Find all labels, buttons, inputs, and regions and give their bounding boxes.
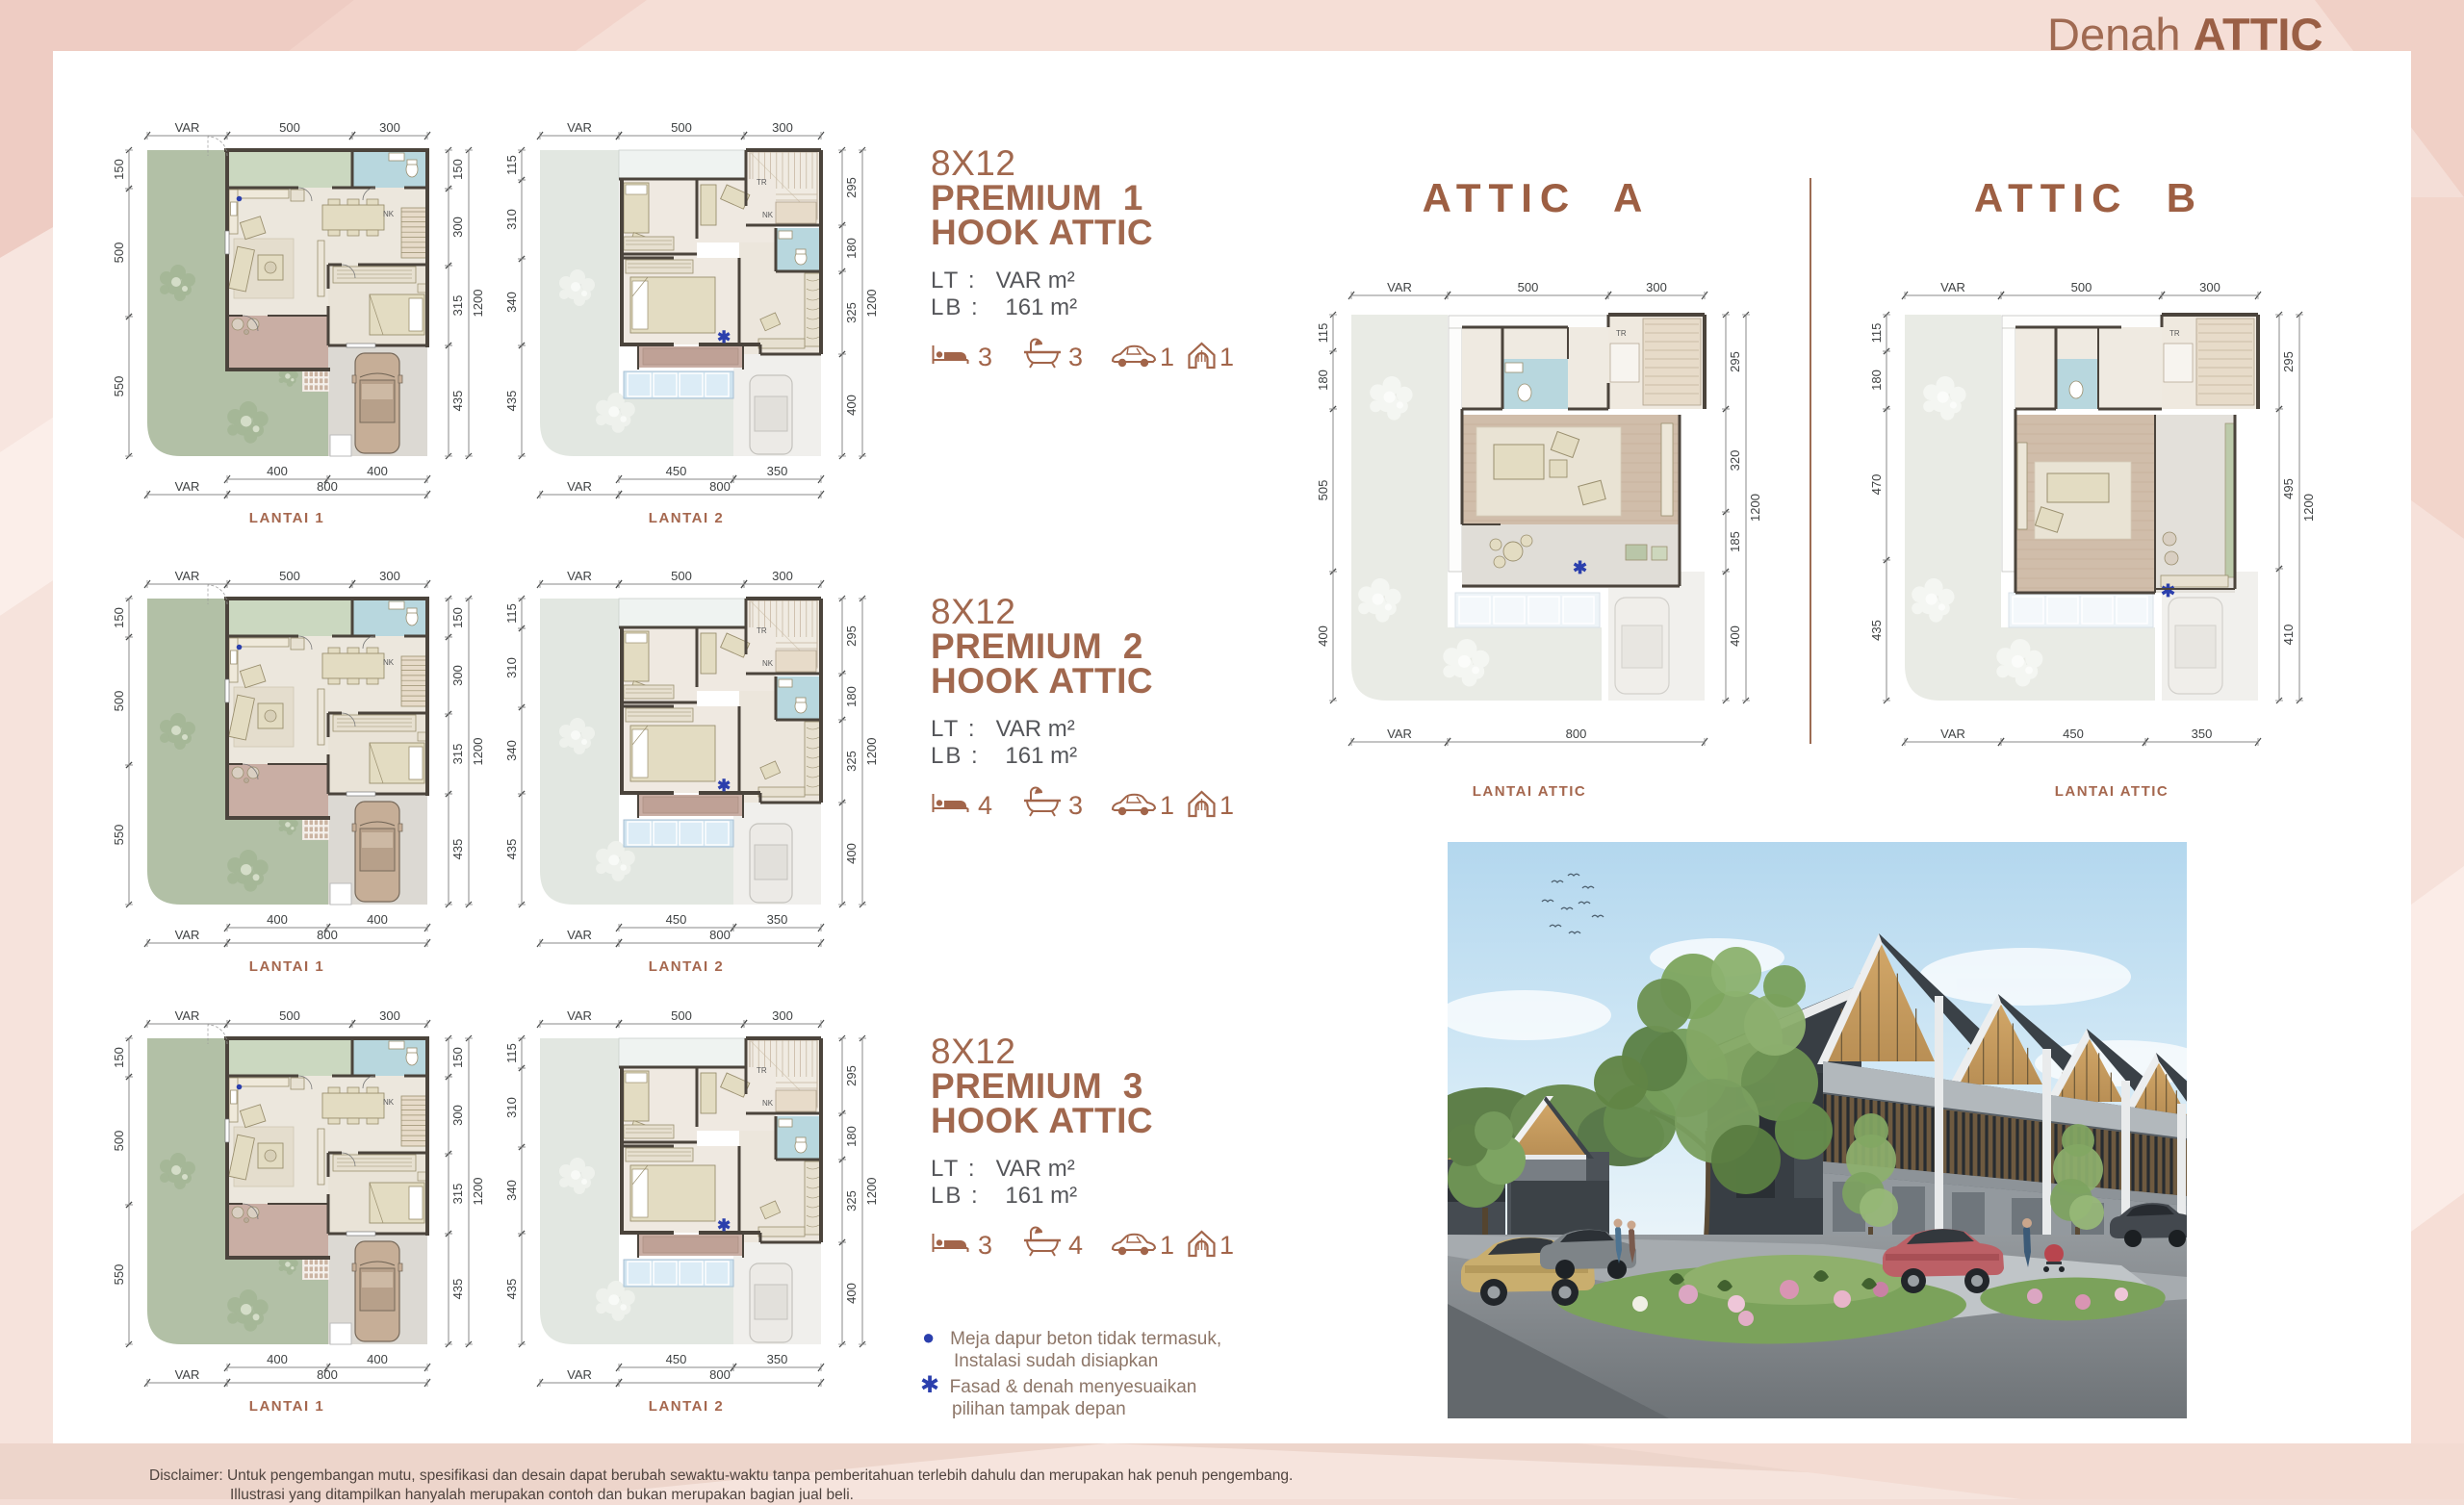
- svg-text:✱: ✱: [1573, 558, 1587, 577]
- svg-text:500: 500: [1518, 280, 1539, 294]
- svg-text:435: 435: [1869, 620, 1884, 641]
- svg-text:295: 295: [1728, 351, 1742, 372]
- svg-text:400: 400: [1316, 625, 1330, 647]
- svg-text:300: 300: [1646, 280, 1667, 294]
- svg-text:470: 470: [1869, 474, 1884, 496]
- svg-text:185: 185: [1728, 531, 1742, 552]
- svg-text:495: 495: [2281, 478, 2296, 499]
- svg-text:✱: ✱: [2161, 581, 2175, 600]
- svg-text:VAR: VAR: [1387, 280, 1412, 294]
- svg-text:115: 115: [1869, 323, 1884, 344]
- svg-text:450: 450: [2063, 727, 2084, 741]
- svg-text:LANTAI ATTIC: LANTAI ATTIC: [2055, 783, 2169, 800]
- svg-text:1200: 1200: [1748, 494, 1762, 522]
- svg-text:VAR: VAR: [1940, 727, 1965, 741]
- svg-text:410: 410: [2281, 625, 2296, 646]
- svg-text:300: 300: [2199, 280, 2220, 294]
- svg-text:400: 400: [1728, 625, 1742, 647]
- svg-text:320: 320: [1728, 450, 1742, 472]
- svg-text:VAR: VAR: [1387, 727, 1412, 741]
- svg-text:180: 180: [1316, 370, 1330, 391]
- svg-text:VAR: VAR: [1940, 280, 1965, 294]
- svg-text:LANTAI ATTIC: LANTAI ATTIC: [1473, 783, 1587, 800]
- svg-text:115: 115: [1316, 323, 1330, 344]
- svg-text:505: 505: [1316, 480, 1330, 501]
- svg-text:1200: 1200: [2301, 494, 2316, 522]
- svg-text:295: 295: [2281, 351, 2296, 372]
- svg-text:180: 180: [1869, 370, 1884, 391]
- svg-text:500: 500: [2071, 280, 2092, 294]
- svg-text:TR: TR: [2169, 329, 2180, 338]
- svg-text:800: 800: [1566, 727, 1587, 741]
- svg-text:350: 350: [2192, 727, 2213, 741]
- svg-text:TR: TR: [1616, 329, 1627, 338]
